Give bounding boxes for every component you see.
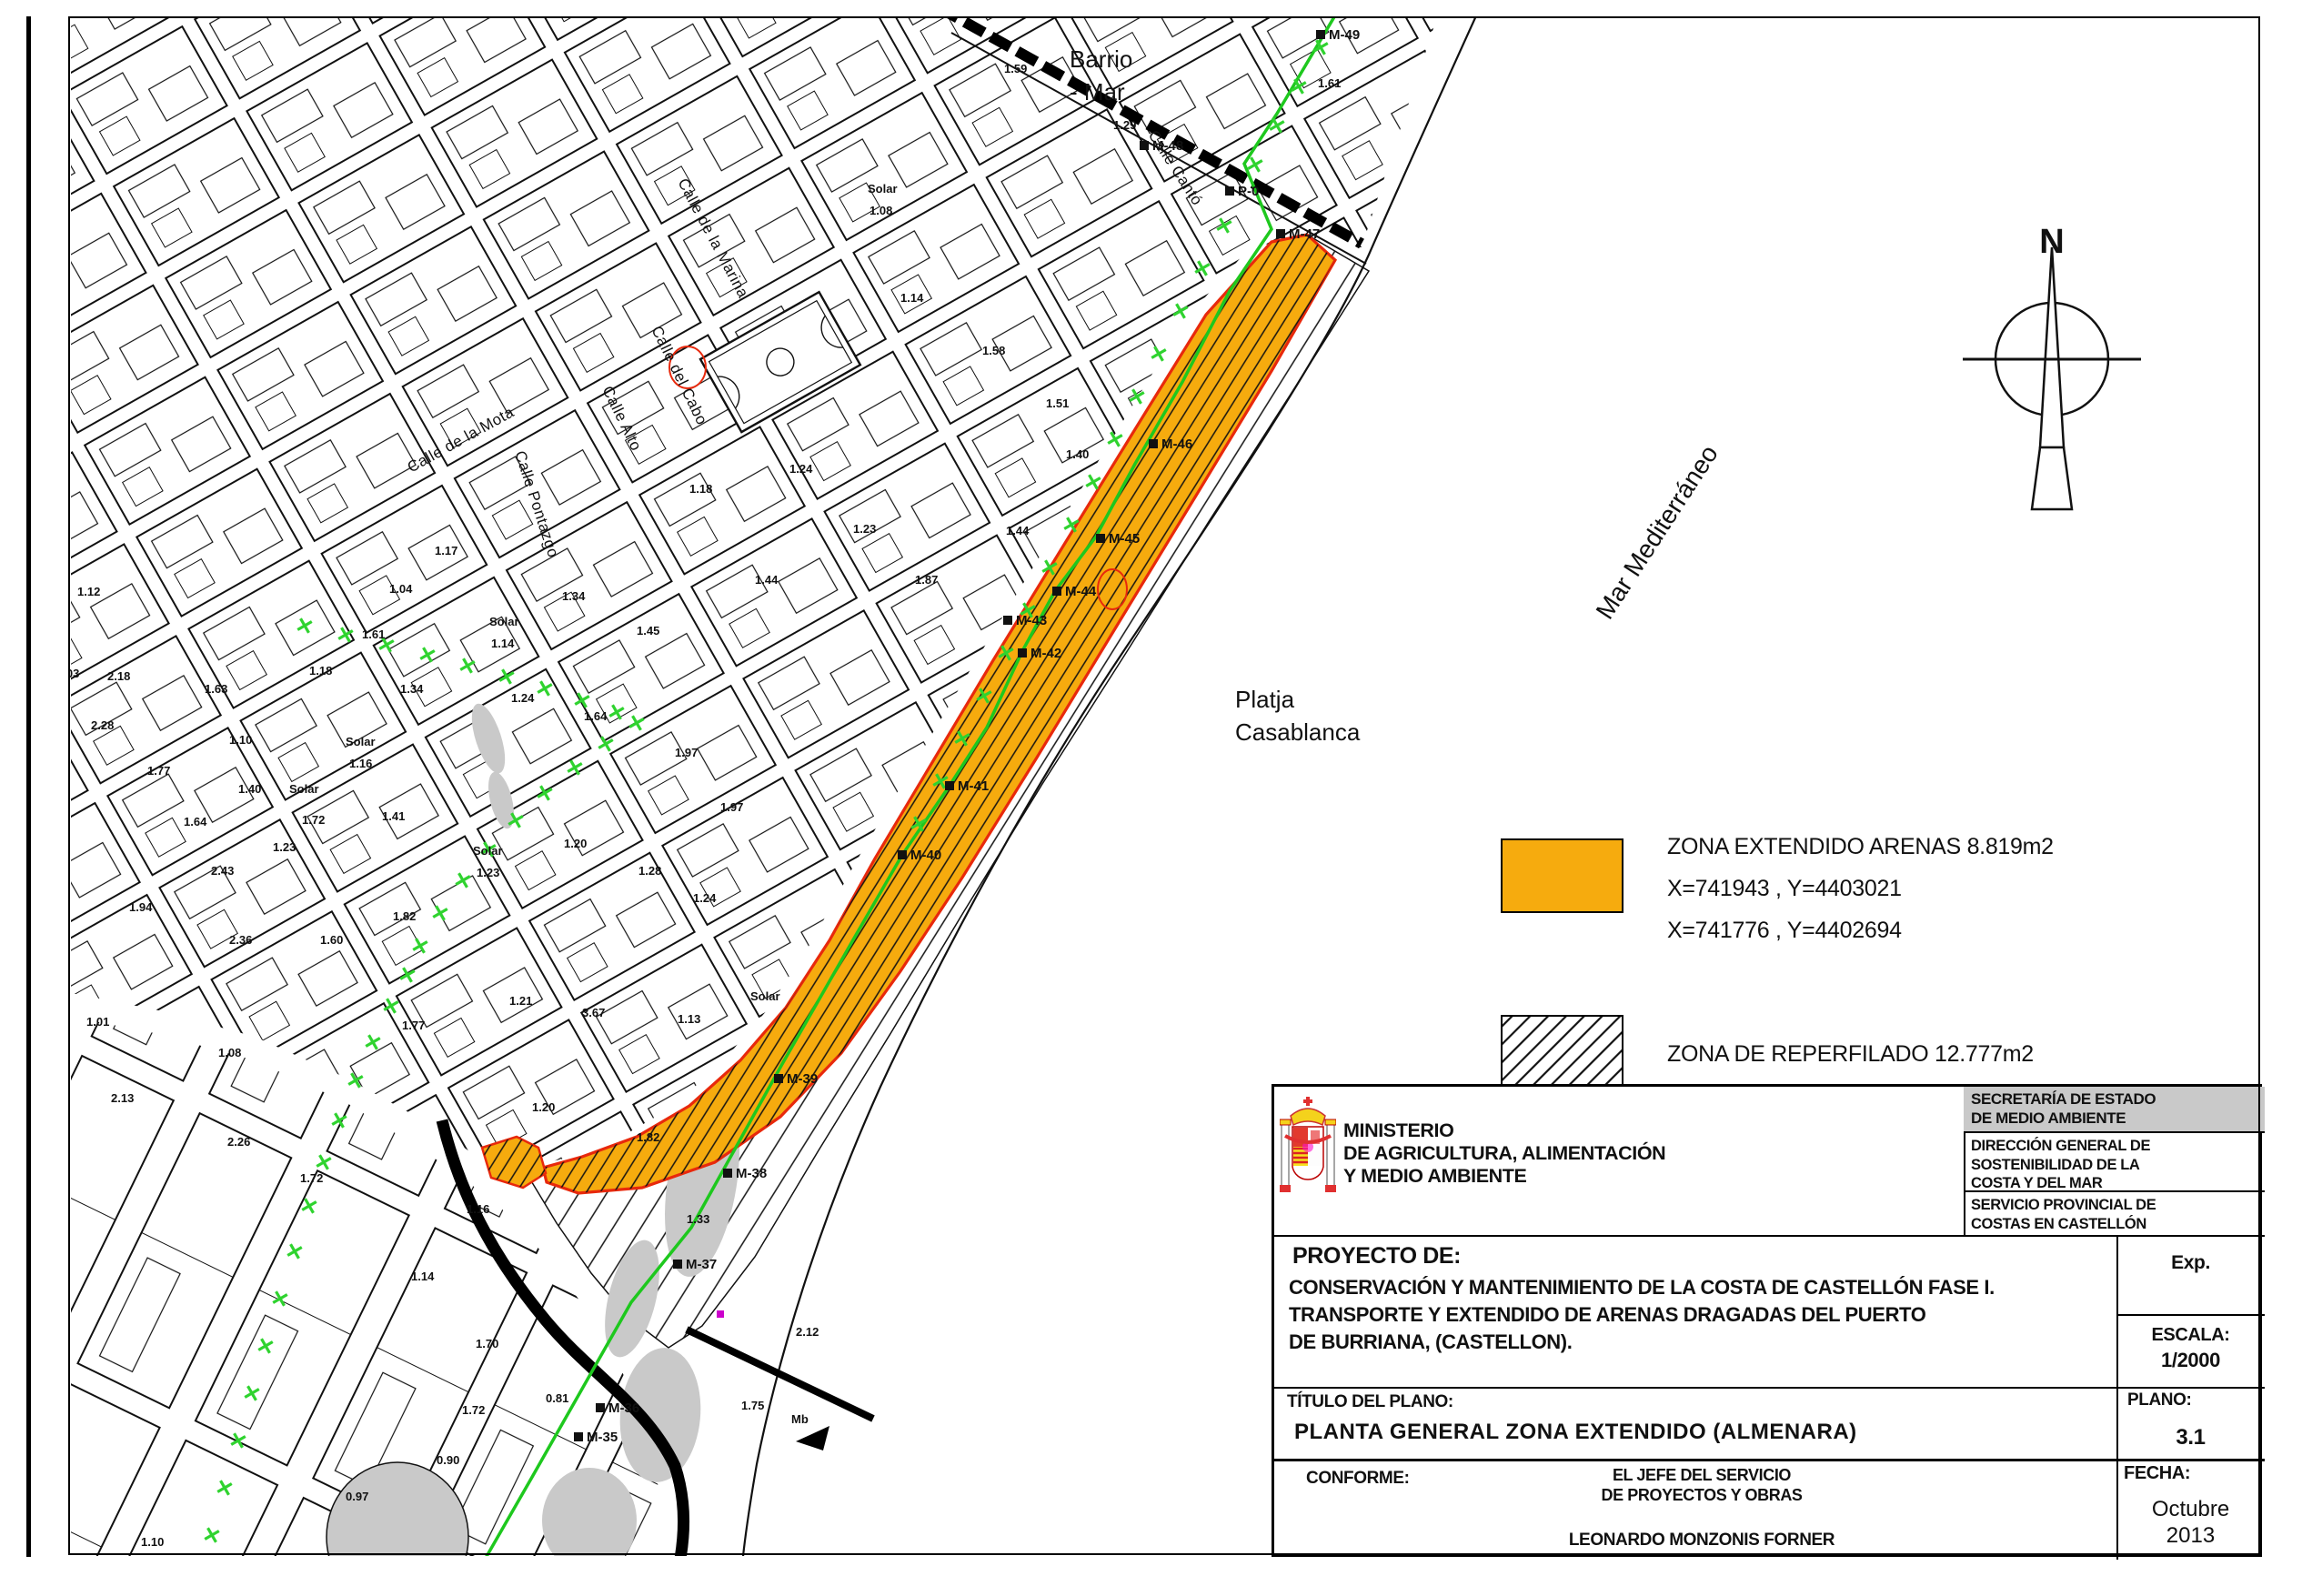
svg-text:1.61: 1.61 xyxy=(1318,76,1341,90)
svg-text:1.16: 1.16 xyxy=(349,757,372,770)
svg-text:Solar: Solar xyxy=(346,735,376,748)
svg-text:1.12: 1.12 xyxy=(77,585,100,598)
svg-text:Solar: Solar xyxy=(289,782,319,796)
spain-coat-of-arms xyxy=(1280,1096,1336,1203)
svg-text:1.72: 1.72 xyxy=(300,1171,323,1185)
svg-text:1.14: 1.14 xyxy=(900,291,924,305)
svg-text:2.18: 2.18 xyxy=(107,669,130,683)
svg-text:1.94: 1.94 xyxy=(129,900,153,914)
plan-sheet: M-49M-48P-0M-47M-46M-45M-44M-43M-42M-41M… xyxy=(0,0,2302,1596)
svg-text:1.21: 1.21 xyxy=(509,994,532,1008)
svg-text:M-46: M-46 xyxy=(1161,437,1192,452)
svg-text:1.97: 1.97 xyxy=(675,746,698,759)
svg-text:1.87: 1.87 xyxy=(915,573,938,587)
svg-text:1.24: 1.24 xyxy=(511,691,535,705)
svg-text:0.90: 0.90 xyxy=(437,1453,459,1467)
svg-text:M-47: M-47 xyxy=(1289,226,1320,242)
svg-text:M-38: M-38 xyxy=(736,1166,767,1181)
firmante-name: LEONARDO MONZONIS FORNER xyxy=(1502,1531,1902,1551)
legend-swatch-extendido xyxy=(1501,838,1623,913)
conforme-label: CONFORME: xyxy=(1306,1469,1410,1489)
svg-text:1.03: 1.03 xyxy=(56,667,79,680)
svg-text:1.77: 1.77 xyxy=(402,1019,425,1032)
svg-text:1.20: 1.20 xyxy=(532,1100,555,1114)
svg-text:1.72: 1.72 xyxy=(302,813,325,827)
jefe-servicio: EL JEFE DEL SERVICIO DE PROYECTOS Y OBRA… xyxy=(1502,1465,1902,1505)
svg-text:1.34: 1.34 xyxy=(562,589,586,603)
svg-text:Solar: Solar xyxy=(489,615,519,628)
svg-text:Solar: Solar xyxy=(473,844,503,858)
legend-extendido-text: ZONA EXTENDIDO ARENAS 8.819m2 X=741943 ,… xyxy=(1667,826,2054,951)
access-road xyxy=(687,1330,873,1419)
svg-text:1.60: 1.60 xyxy=(320,933,343,947)
svg-text:1.40: 1.40 xyxy=(238,782,261,796)
escala-label: ESCALA: xyxy=(2116,1325,2265,1346)
svg-text:1.33: 1.33 xyxy=(687,1212,709,1226)
svg-text:M-44: M-44 xyxy=(1065,584,1097,599)
svg-text:M-39: M-39 xyxy=(787,1071,818,1087)
svg-text:1.45: 1.45 xyxy=(637,624,659,637)
org-secretaria: SECRETARÍA DE ESTADO DE MEDIO AMBIENTE xyxy=(1964,1087,2265,1133)
svg-text:Mb: Mb xyxy=(791,1412,809,1426)
svg-text:1.20: 1.20 xyxy=(564,837,587,850)
svg-text:M-43: M-43 xyxy=(1016,613,1047,628)
svg-text:M-45: M-45 xyxy=(1109,531,1140,547)
svg-text:1.40: 1.40 xyxy=(1066,447,1089,461)
plano-value: 3.1 xyxy=(2116,1425,2265,1450)
svg-text:1.77: 1.77 xyxy=(147,764,170,778)
svg-text:M-49: M-49 xyxy=(1329,27,1360,43)
binding-edge-bar xyxy=(26,16,31,1557)
svg-text:1.44: 1.44 xyxy=(755,573,779,587)
svg-text:1.44: 1.44 xyxy=(1006,524,1030,537)
svg-text:1.64: 1.64 xyxy=(184,815,207,828)
svg-text:1.08: 1.08 xyxy=(218,1046,241,1059)
proyecto-description: CONSERVACIÓN Y MANTENIMIENTO DE LA COSTA… xyxy=(1289,1274,2107,1356)
svg-text:2.13: 2.13 xyxy=(111,1091,134,1105)
svg-text:1.08: 1.08 xyxy=(870,204,892,217)
svg-text:1.13: 1.13 xyxy=(678,1012,700,1026)
svg-text:1.59: 1.59 xyxy=(1004,62,1027,75)
svg-text:1.10: 1.10 xyxy=(229,733,252,747)
svg-text:1.64: 1.64 xyxy=(584,709,608,723)
org-direccion: DIRECCIÓN GENERAL DE SOSTENIBILIDAD DE L… xyxy=(1964,1135,2265,1192)
legend-swatch-reperfilado xyxy=(1501,1015,1623,1089)
svg-text:1.04: 1.04 xyxy=(389,582,413,596)
svg-text:1.18: 1.18 xyxy=(689,482,712,496)
north-arrow: N xyxy=(1955,209,2156,537)
beach-label: Platja Casablanca xyxy=(1235,684,1360,749)
fecha-label: FECHA: xyxy=(2124,1463,2190,1484)
svg-text:1.23: 1.23 xyxy=(853,522,876,536)
svg-text:2.28: 2.28 xyxy=(91,718,114,732)
svg-text:Solar: Solar xyxy=(750,989,780,1003)
svg-text:1.97: 1.97 xyxy=(720,800,743,814)
svg-text:1.29: 1.29 xyxy=(1113,118,1136,132)
svg-text:1.82: 1.82 xyxy=(637,1130,659,1144)
svg-text:1.23: 1.23 xyxy=(477,866,499,879)
svg-text:1.82: 1.82 xyxy=(393,909,416,923)
svg-text:1.10: 1.10 xyxy=(141,1535,164,1549)
exp-label: Exp. xyxy=(2116,1252,2265,1274)
svg-text:1.58: 1.58 xyxy=(982,344,1005,357)
org-servicio: SERVICIO PROVINCIAL DE COSTAS EN CASTELL… xyxy=(1964,1194,2265,1235)
svg-text:2.12: 2.12 xyxy=(796,1325,819,1339)
svg-text:1.14: 1.14 xyxy=(491,637,515,650)
svg-text:2.43: 2.43 xyxy=(211,864,234,878)
svg-text:1.41: 1.41 xyxy=(382,809,405,823)
fecha-value: Octubre 2013 xyxy=(2116,1496,2265,1549)
svg-text:3.67: 3.67 xyxy=(582,1006,605,1019)
magenta-marker xyxy=(717,1310,724,1318)
proyecto-label: PROYECTO DE: xyxy=(1292,1243,1461,1270)
svg-text:1.34: 1.34 xyxy=(400,682,424,696)
svg-text:1.23: 1.23 xyxy=(273,840,296,854)
svg-text:2.36: 2.36 xyxy=(229,933,252,947)
svg-text:1.63: 1.63 xyxy=(205,682,227,696)
road-arrowhead xyxy=(796,1426,829,1450)
svg-text:M-42: M-42 xyxy=(1030,646,1061,661)
ministry-name: MINISTERIO DE AGRICULTURA, ALIMENTACIÓN … xyxy=(1343,1119,1665,1188)
svg-text:1.19: 1.19 xyxy=(45,535,68,548)
svg-text:1.14: 1.14 xyxy=(411,1270,435,1283)
svg-text:M-36: M-36 xyxy=(608,1400,639,1416)
svg-text:Solar: Solar xyxy=(868,182,898,196)
escala-value: 1/2000 xyxy=(2116,1349,2265,1372)
svg-text:1.51: 1.51 xyxy=(1046,396,1069,410)
titulo-label: TÍTULO DEL PLANO: xyxy=(1287,1392,1453,1412)
svg-text:1.18: 1.18 xyxy=(309,664,332,678)
svg-text:M-35: M-35 xyxy=(587,1430,618,1445)
svg-text:1.61: 1.61 xyxy=(362,627,385,641)
svg-text:M-37: M-37 xyxy=(686,1257,717,1272)
svg-text:1.17: 1.17 xyxy=(435,544,457,557)
svg-text:1.72: 1.72 xyxy=(462,1403,485,1417)
svg-text:0.81: 0.81 xyxy=(546,1391,568,1405)
plano-label: PLANO: xyxy=(2127,1390,2191,1410)
svg-text:1.16: 1.16 xyxy=(467,1202,489,1216)
district-label: Barrio - Mar xyxy=(1070,44,1132,109)
svg-text:M-40: M-40 xyxy=(910,848,941,863)
legend-reperfilado-text: ZONA DE REPERFILADO 12.777m2 xyxy=(1667,1033,2034,1075)
svg-text:M-41: M-41 xyxy=(958,778,989,794)
svg-text:0.97: 0.97 xyxy=(346,1490,368,1503)
svg-text:1.75: 1.75 xyxy=(741,1399,764,1412)
svg-text:1.70: 1.70 xyxy=(476,1337,498,1350)
svg-text:1.01: 1.01 xyxy=(86,1015,109,1029)
svg-text:1.24: 1.24 xyxy=(789,462,813,476)
svg-text:1.28: 1.28 xyxy=(638,864,661,878)
svg-text:2.26: 2.26 xyxy=(227,1135,250,1149)
title-block: MINISTERIO DE AGRICULTURA, ALIMENTACIÓN … xyxy=(1272,1084,2262,1557)
svg-text:P-0: P-0 xyxy=(1238,184,1259,199)
titulo-value: PLANTA GENERAL ZONA EXTENDIDO (ALMENARA) xyxy=(1294,1420,1857,1445)
svg-text:1.24: 1.24 xyxy=(693,891,717,905)
